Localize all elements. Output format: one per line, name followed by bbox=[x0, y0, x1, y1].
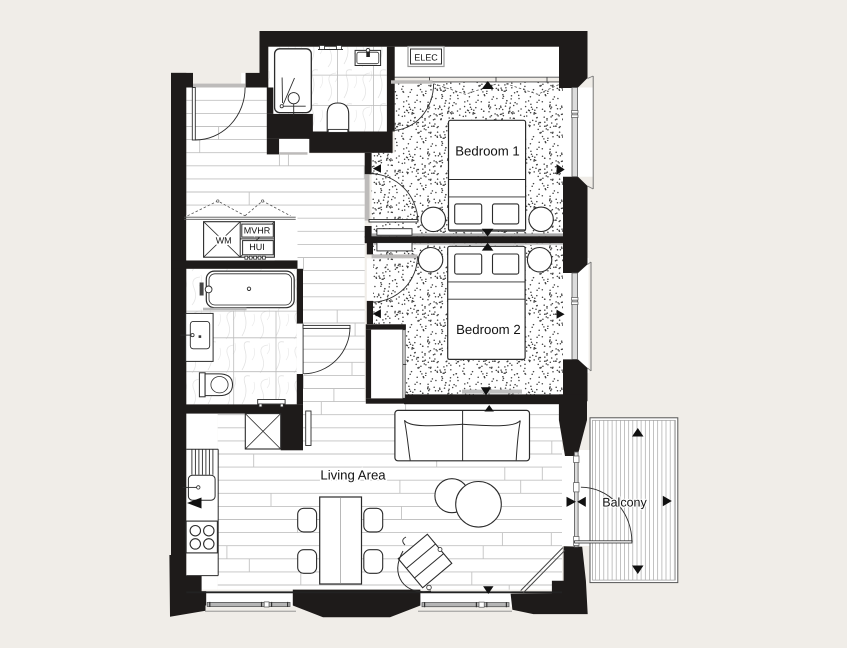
svg-text:Bedroom 2: Bedroom 2 bbox=[456, 322, 521, 337]
svg-text:WM: WM bbox=[216, 236, 232, 246]
svg-text:Living Area: Living Area bbox=[320, 468, 386, 483]
svg-text:Bedroom 1: Bedroom 1 bbox=[455, 144, 520, 159]
svg-text:Balcony: Balcony bbox=[602, 495, 647, 509]
svg-text:ELEC: ELEC bbox=[414, 52, 438, 62]
svg-text:HUI: HUI bbox=[249, 242, 265, 252]
svg-text:MVHR: MVHR bbox=[244, 226, 271, 236]
